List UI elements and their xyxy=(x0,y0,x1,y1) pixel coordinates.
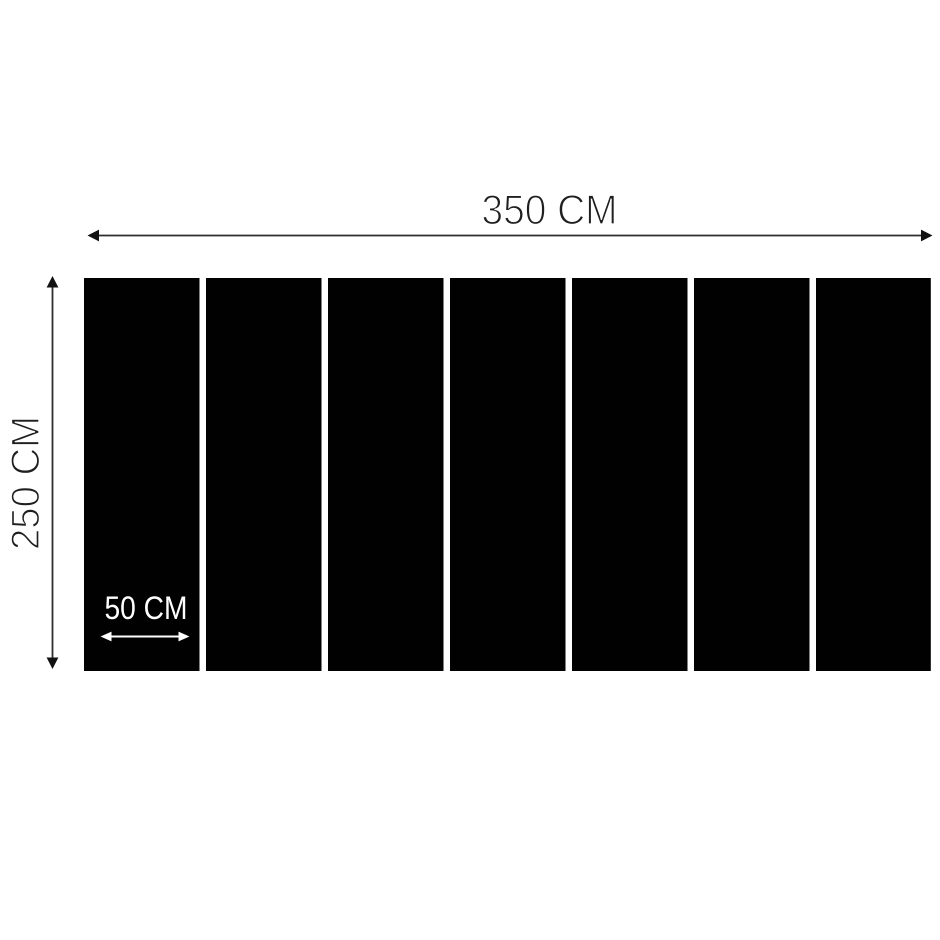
svg-text:250 CM: 250 CM xyxy=(4,416,48,550)
svg-text:50 CM: 50 CM xyxy=(105,590,188,626)
svg-text:350 CM: 350 CM xyxy=(482,186,618,233)
